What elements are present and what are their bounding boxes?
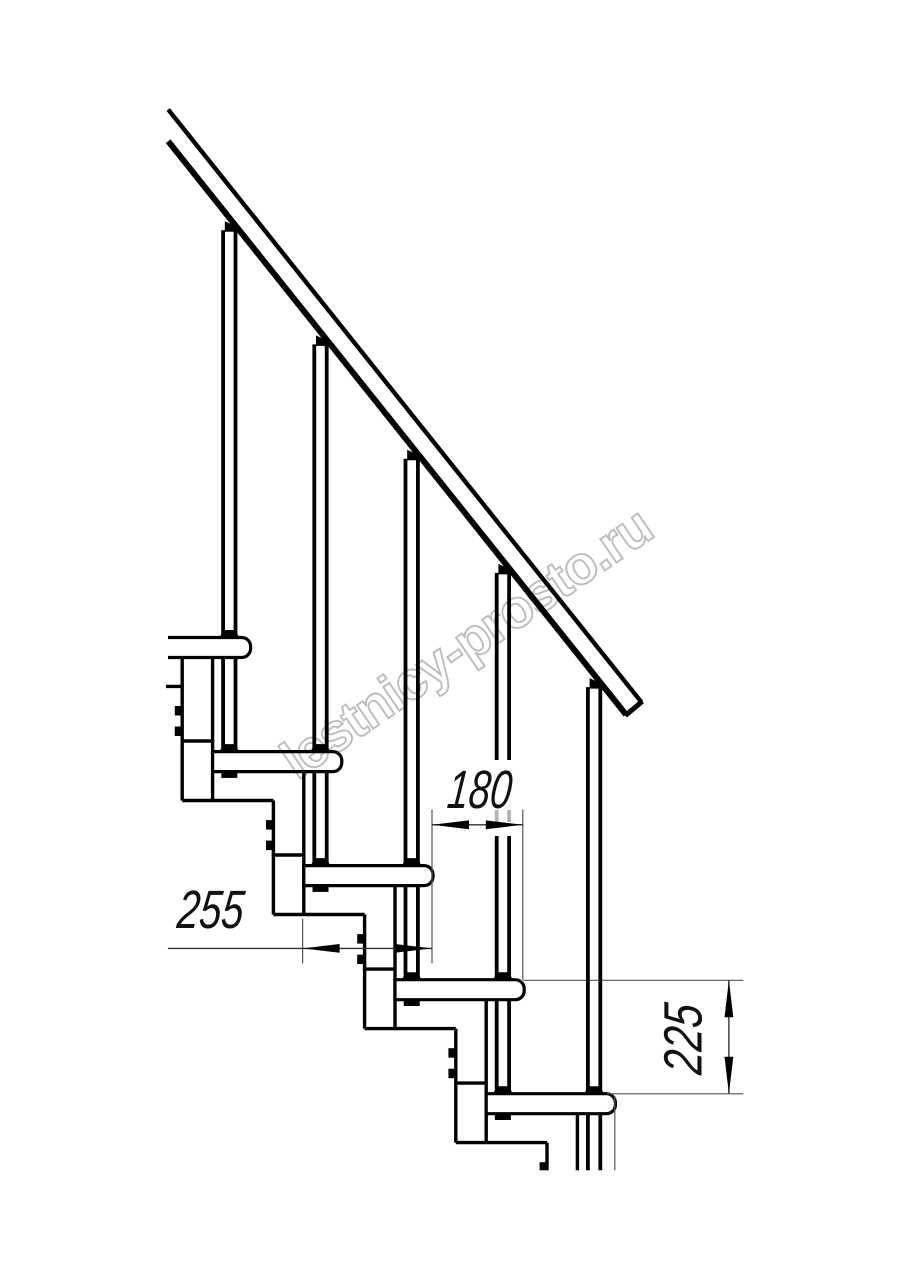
- svg-text:180: 180: [445, 760, 515, 820]
- svg-text:225: 225: [653, 1000, 713, 1078]
- svg-text:255: 255: [174, 880, 248, 940]
